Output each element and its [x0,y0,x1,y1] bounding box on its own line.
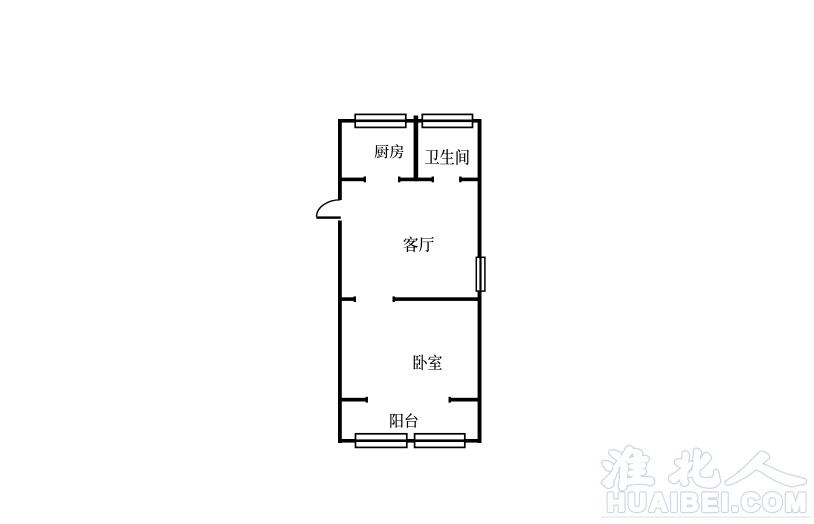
svg-text:HUAIBEI.COM: HUAIBEI.COM [607,489,809,517]
